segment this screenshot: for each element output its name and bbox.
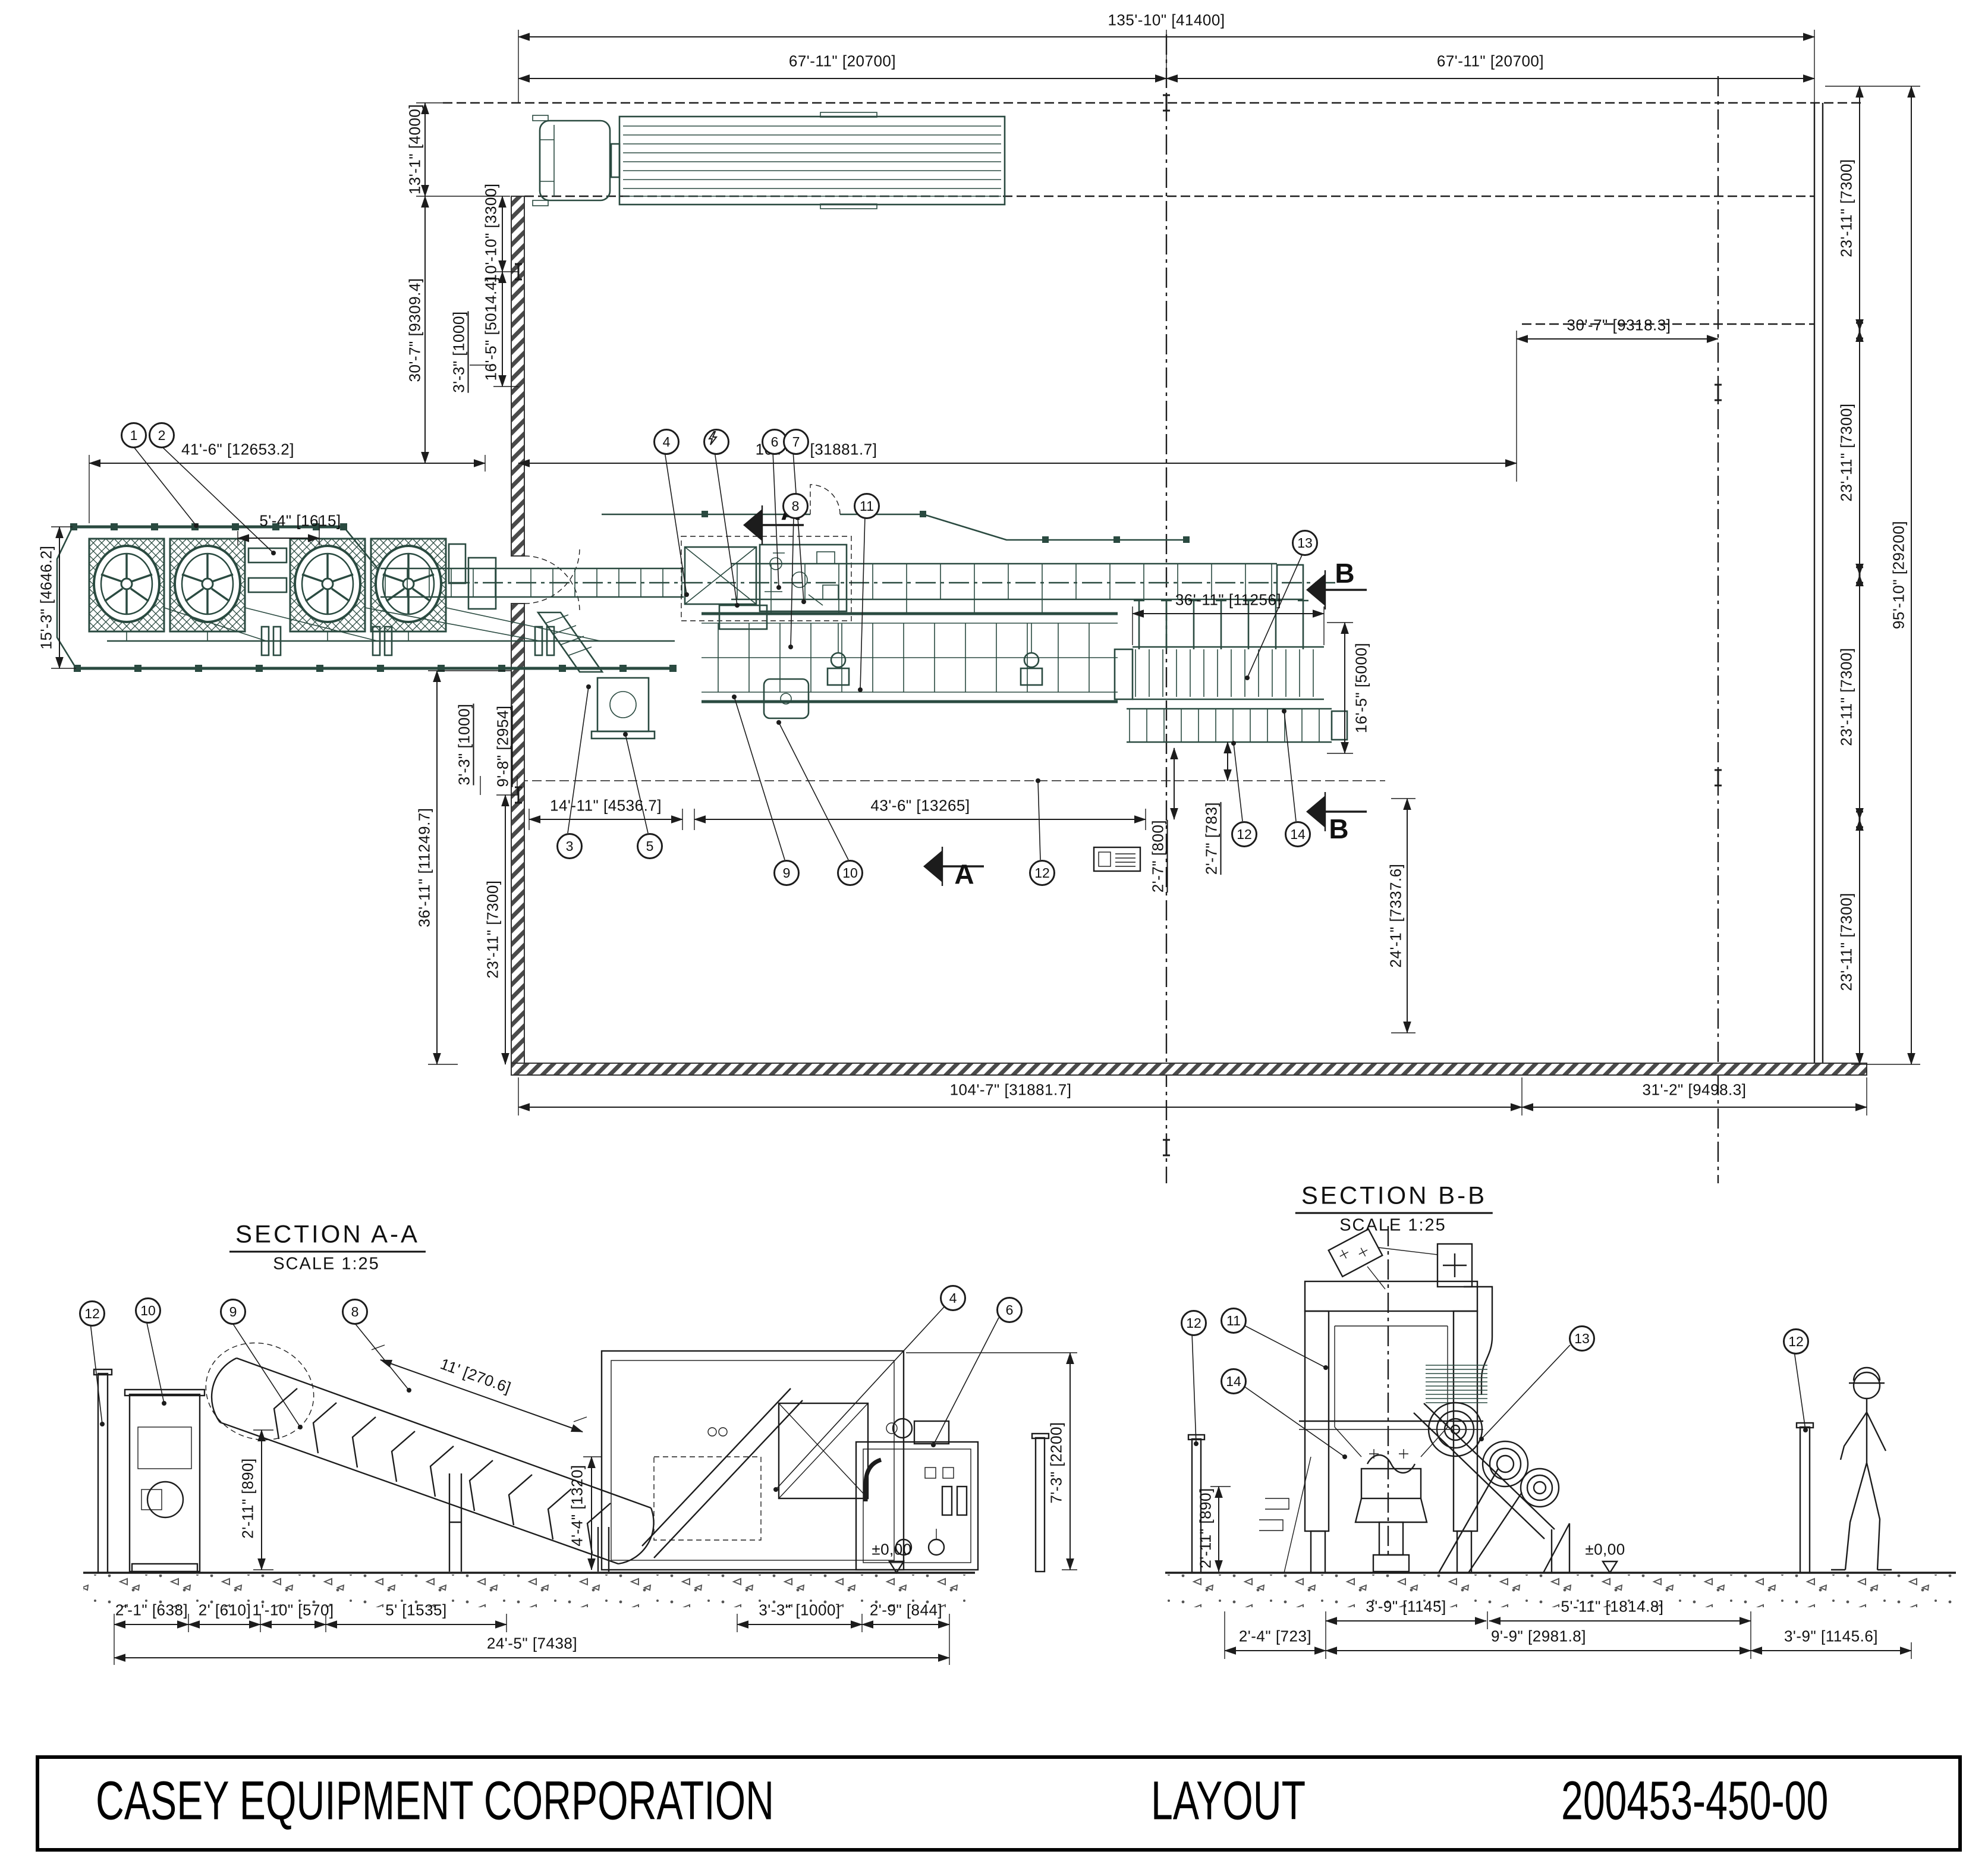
balloon-11: 11 [854, 493, 880, 519]
dim-platform-len: 41'-6" [12653.2] [181, 441, 294, 459]
balloon-12-label: 12 [1186, 1315, 1201, 1331]
balloon-6-label: 6 [771, 434, 779, 450]
electrical-symbol-balloon [703, 429, 729, 455]
section-mark-b-top: B [1335, 557, 1354, 589]
balloon-6: 6 [996, 1297, 1023, 1323]
dim-a-motor-h: 2'-11" [890] [239, 1458, 257, 1538]
balloon-11: 11 [1221, 1308, 1247, 1334]
level-mark-b: ±0,00 [1585, 1541, 1625, 1559]
balloon-12: 12 [1231, 821, 1257, 847]
dim-lower-off-a: 3'-3" [1000] [455, 703, 474, 785]
balloon-12: 12 [1181, 1310, 1207, 1336]
dim-b-d2: 5'-11" [1814.8] [1561, 1598, 1664, 1616]
dim-edge-off-b: 2'-7" [783] [1203, 802, 1221, 875]
balloon-12-label: 12 [1788, 1334, 1804, 1350]
title-block-company: CASEY EQUIPMENT CORPORATION [96, 1770, 774, 1832]
dim-a-d2: 2' [610] [199, 1601, 251, 1620]
balloon-5: 5 [637, 833, 663, 859]
dim-col-bay-3: 23'-11" [7300] [1838, 648, 1856, 746]
balloon-4: 4 [653, 429, 680, 455]
dim-a-d1: 2'-1" [638] [115, 1601, 188, 1620]
section-arrow-a-bottom [923, 847, 984, 886]
balloon-13: 13 [1569, 1325, 1595, 1352]
dim-a-d6: 2'-9" [844] [870, 1601, 942, 1620]
control-panel-icon [1094, 847, 1140, 871]
fan-unit [89, 539, 164, 631]
balloon-14: 14 [1221, 1368, 1247, 1394]
balloon-12: 12 [1029, 860, 1055, 886]
balloon-9-label: 9 [783, 865, 791, 881]
dim-b-d1: 3'-9" [1145] [1366, 1598, 1446, 1616]
balloon-9: 9 [220, 1299, 246, 1325]
dim-a-d4: 5' [1535] [385, 1601, 446, 1620]
balloon-3-label: 3 [566, 838, 574, 854]
balloon-11-label: 11 [1226, 1313, 1241, 1329]
balloon-9-label: 9 [229, 1304, 237, 1320]
balloon-10-label: 10 [842, 865, 858, 881]
section-b-machines [1188, 1229, 1813, 1573]
balloon-13-label: 13 [1297, 535, 1313, 551]
balloon-2-label: 2 [158, 428, 166, 444]
truck-top-view [533, 112, 1005, 209]
balloon-12-label: 12 [1237, 827, 1252, 843]
balloon-4-label: 4 [949, 1290, 957, 1306]
fan-unit [290, 539, 365, 631]
balloon-12: 12 [79, 1300, 105, 1327]
balloon-2: 2 [149, 422, 175, 448]
dim-b-post-h: 2'-11" [890] [1197, 1488, 1215, 1568]
dim-rack-wid: 16'-5" [5000] [1352, 643, 1371, 733]
dim-lower-off-b: 9'-8" [2954] [494, 705, 512, 787]
balloon-6-label: 6 [1006, 1302, 1014, 1318]
dim-a-total: 24'-5" [7438] [487, 1635, 577, 1653]
dim-a-d3: 1'-10" [570] [252, 1601, 334, 1620]
dim-wall-seg-a: 10'-10" [3300] [482, 183, 501, 282]
title-block: CASEY EQUIPMENT CORPORATION LAYOUT 20045… [36, 1755, 1962, 1852]
dim-bay-right: 67'-11" [20700] [1437, 52, 1544, 71]
drawing-linework [0, 0, 1988, 1854]
dim-a-cabinet-h: 7'-3" [2200] [1048, 1422, 1066, 1503]
balloon-11-label: 11 [860, 498, 874, 514]
worker-figure [1831, 1368, 1892, 1570]
balloon-4-label: 4 [663, 434, 671, 450]
dim-b-d5: 3'-9" [1145.6] [1784, 1627, 1878, 1646]
balloon-4: 4 [940, 1285, 966, 1311]
balloon-12-label: 12 [1034, 865, 1050, 881]
balloon-12-label: 12 [84, 1306, 100, 1322]
dim-mill-len: 43'-6" [13265] [870, 797, 970, 815]
balloon-1: 1 [121, 422, 147, 448]
dim-truck-lane: 13'-1" [4000] [406, 104, 424, 194]
balloon-7-label: 7 [792, 434, 800, 450]
dim-a-d5: 3'-3" [1000] [759, 1601, 840, 1620]
dim-bottom-len: 104'-7" [31881.7] [950, 1081, 1072, 1099]
dim-hall-depth: 30'-7" [9309.4] [406, 278, 424, 382]
dim-wall-offset: 3'-3" [1000] [450, 311, 468, 392]
balloon-10: 10 [135, 1297, 161, 1324]
section-b-title: SECTION B-B [1295, 1181, 1493, 1214]
dim-platform-wid: 15'-3" [4646.2] [37, 546, 56, 650]
balloon-10-label: 10 [140, 1303, 156, 1319]
drawing-sheet: 135'-10" [41400] 67'-11" [20700] 67'-11"… [0, 0, 1988, 1854]
fan-unit [170, 539, 245, 631]
title-block-drawing-number: 200453-450-00 [1561, 1770, 1828, 1832]
dim-right-offset: 30'-7" [9318.3] [1567, 316, 1671, 335]
dim-bottom-right: 31'-2" [9498.3] [1643, 1081, 1747, 1099]
balloon-8: 8 [342, 1299, 368, 1325]
dim-lower-depth-b: 23'-11" [7300] [484, 880, 502, 978]
dim-wall-seg-b: 16'-5" [5014.4] [482, 277, 501, 381]
balloon-14-label: 14 [1226, 1374, 1241, 1390]
dim-fan-gap: 5'-4" [1615] [259, 512, 341, 530]
dim-a-discharge-h: 4'-4" [1320] [568, 1465, 587, 1546]
level-mark-a: ±0,00 [872, 1541, 911, 1559]
dim-overall-depth: 95'-10" [29200] [1890, 521, 1908, 629]
balloon-9: 9 [773, 860, 800, 886]
section-a-title: SECTION A-A [229, 1220, 426, 1253]
balloon-14-label: 14 [1290, 827, 1306, 843]
balloon-1-label: 1 [130, 428, 138, 444]
section-mark-a-bottom: A [954, 858, 974, 890]
fan-unit [371, 539, 446, 631]
balloon-8-label: 8 [792, 498, 800, 514]
balloon-12: 12 [1783, 1328, 1809, 1355]
section-b-scale: SCALE 1:25 [1339, 1216, 1446, 1236]
dim-infeed-len: 14'-11" [4536.7] [550, 797, 662, 815]
balloon-7: 7 [783, 429, 809, 455]
dim-bay-left: 67'-11" [20700] [789, 52, 896, 71]
dim-lower-depth-a: 36'-11" [11249.7] [416, 808, 434, 928]
dim-rack-len: 36'-11" [11256] [1175, 591, 1281, 609]
dim-edge-off-a: 2'-7" [800] [1149, 820, 1168, 893]
balloon-8-label: 8 [351, 1304, 359, 1320]
rack-conveyor [1115, 601, 1347, 742]
balloon-13: 13 [1292, 530, 1318, 556]
dim-col-bay-1: 23'-11" [7300] [1838, 159, 1856, 257]
section-mark-b-bottom: B [1329, 813, 1348, 845]
section-a-scale: SCALE 1:25 [273, 1255, 380, 1274]
balloon-8: 8 [782, 493, 809, 519]
balloon-3: 3 [556, 833, 583, 859]
dim-col-bay-4: 23'-11" [7300] [1838, 893, 1856, 991]
balloon-14: 14 [1285, 821, 1311, 847]
lightning-bolt-icon [705, 430, 721, 446]
dim-b-d4: 9'-9" [2981.8] [1491, 1627, 1586, 1646]
dim-south-clear: 24'-1" [7337.6] [1387, 864, 1405, 968]
dim-overall-width: 135'-10" [41400] [1108, 11, 1225, 30]
dim-b-d3: 2'-4" [723] [1239, 1627, 1311, 1646]
balloon-13-label: 13 [1574, 1331, 1590, 1347]
title-block-sheet-title: LAYOUT [1151, 1770, 1306, 1832]
dim-col-bay-2: 23'-11" [7300] [1838, 403, 1856, 501]
balloon-10: 10 [837, 860, 863, 886]
balloon-5-label: 5 [646, 838, 654, 854]
